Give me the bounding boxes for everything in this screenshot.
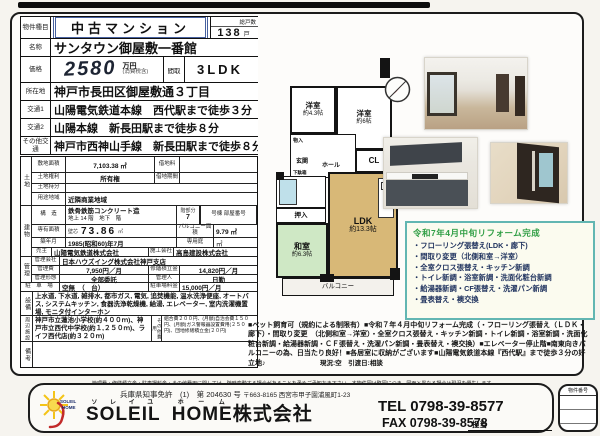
- living-window: [427, 72, 457, 116]
- company-ruby-soleil: ソレイユ: [86, 400, 161, 406]
- equipment-value: 上水道, 下水道, 雑排水, 都市ガス, 電気, 追焚機能, 温水洗浄便座, オ…: [33, 292, 257, 315]
- structure-value: 鉄骨鉄筋コンクリート造: [68, 208, 140, 216]
- row-property-type: 物件種目 中古マンション 総戸数 138 戸: [21, 17, 258, 39]
- access3-value: 神戸市西神山手線 新長田駅まで徒歩８分: [51, 137, 258, 154]
- north-compass-icon: [384, 76, 411, 103]
- zone-label: 用途地域: [32, 193, 66, 205]
- access3-label: その他交通: [21, 137, 51, 154]
- layout-value: 3LDK: [185, 57, 255, 82]
- balcony: バルコニー: [282, 278, 394, 296]
- seller-label: 売主: [32, 248, 52, 256]
- reform-item: ・給湯器新調・CF張替え・洗濯パン新調: [413, 284, 587, 295]
- phone-number: TEL 0798-39-8577: [378, 398, 504, 415]
- photo-living-room: [424, 57, 528, 130]
- company-ruby-home: ホーム: [172, 400, 233, 406]
- row-surroundings: 周辺施設 神戸市立蓮池小学校(約４００ｍ)、神戸市立西代中学校(約１,２５０ｍ)…: [21, 316, 257, 342]
- parking-label: 駐 車 場: [21, 283, 60, 291]
- mgmt-style-value: 全部委託: [60, 275, 148, 282]
- mgmt-fee-label: 管理費: [32, 266, 60, 274]
- company-name: SOLEILソレイユ HOMEホーム株式会社: [86, 399, 313, 426]
- land-area-value: 7,103.38 ㎡: [66, 157, 154, 172]
- total-units-cell: 総戸数 138 戸: [210, 17, 258, 38]
- row-price: 価格 2580 万円 (消費税含) 間取 3LDK: [21, 57, 258, 83]
- staff-field: 担当: [468, 419, 552, 431]
- land-right-label: 土地権利: [32, 173, 66, 183]
- access1-value: 山陽電気鉄道本線 西代駅まで徒歩３分: [51, 101, 258, 118]
- floor-area-label: 専有面積: [32, 225, 66, 237]
- garden-label: 専用庭: [176, 238, 214, 247]
- kitchen-lower-cabinets: [386, 180, 468, 206]
- kitchen-upper-cabinets: [390, 142, 462, 166]
- land-rent-label: 借地料: [154, 157, 180, 172]
- reform-title: 令和7年4月中旬リフォーム完成: [413, 227, 587, 239]
- price-unit-stack: 万円 (消費税含): [123, 63, 149, 76]
- property-type-value: 中古マンション: [55, 17, 206, 38]
- mgmt-company-label: 管理会社: [32, 257, 60, 265]
- photo-washroom: [490, 142, 568, 204]
- price-label: 価格: [21, 57, 51, 82]
- bathtub: [279, 179, 297, 205]
- parking-value: 空無 （ 台）: [60, 283, 148, 291]
- wall-accent-4: [380, 58, 390, 78]
- row-access3: その他交通 神戸市西神山手線 新長田駅まで徒歩８分: [21, 137, 258, 155]
- reform-item: ・畳表替え・襖交換: [413, 295, 587, 306]
- row-structure: 構 造 鉄骨鉄筋コンクリート造 地上 14 階 地下 階 階部分 7 号棟 部屋…: [32, 206, 257, 225]
- floor-part-value: 7: [186, 214, 190, 221]
- room-japanese: 和室 約6.3帖: [276, 223, 328, 278]
- address-label: 所在地: [21, 83, 51, 100]
- wall-accent-2: [320, 274, 334, 282]
- flyer-page: 物件種目 中古マンション 総戸数 138 戸 名称 サンタウン御屋敷一番館: [0, 0, 600, 436]
- access2-value: 山陽本線 新長田駅まで徒歩８分: [51, 119, 258, 136]
- builder-label: 施工会社: [148, 248, 174, 256]
- reform-info-box: 令和7年4月中旬リフォーム完成 ・フローリング張替え(LDK・廊下) ・間取り変…: [405, 221, 595, 320]
- land-term-label: 借地期間: [154, 173, 180, 183]
- other-costs-value: 組合費２００円、(月額)自治会費１５０円、(月額)ガス警報器設置費用(２５０円)…: [162, 316, 257, 341]
- built-label: 築年月: [32, 238, 66, 247]
- land-term-value: [180, 173, 257, 183]
- access1-label: 交通1: [21, 101, 51, 118]
- manager-value: 日勤: [180, 275, 257, 282]
- building-group-label: 建物: [21, 206, 32, 257]
- living-door-1: [496, 74, 509, 112]
- management-group-label: 管理: [21, 257, 32, 283]
- manager-label: 管理人: [148, 275, 180, 282]
- floor-area-cell: 壁芯 73.86 ㎡: [66, 225, 176, 237]
- footer-company-box: SOLEIL HOME 兵庫県知事免許 (1) 第 204630 号 〒663-…: [28, 383, 554, 433]
- hall-label: ホール: [322, 160, 340, 169]
- oshiire-closet: 押入: [276, 208, 326, 223]
- floors-value: 地上 14 階 地下 階: [68, 216, 121, 223]
- mgmt-style-label: 管理形態: [32, 275, 60, 282]
- other-costs-label: その他費用: [151, 316, 162, 341]
- land-share-value: [66, 184, 257, 192]
- svg-text:HOME: HOME: [62, 405, 76, 410]
- equipment-label: 設備: [21, 292, 33, 315]
- structure-cell: 鉄骨鉄筋コンクリート造 地上 14 階 地下 階: [66, 206, 176, 224]
- builder-value: 高島建設株式会社: [174, 248, 257, 256]
- row-land-right: 土地権利 所有権 借地期間: [32, 173, 257, 184]
- reform-item: ・間取り変更（北側和室→洋室）: [413, 252, 587, 263]
- layout-label: 間取: [163, 57, 185, 82]
- land-rent-value: [180, 157, 257, 172]
- land-group-label: 土地: [21, 157, 32, 206]
- floor-area-value: 73.86: [81, 226, 116, 237]
- garden-value: ㎡: [214, 238, 257, 247]
- license-number: 兵庫県知事免許 (1) 第 204630 号: [120, 390, 241, 399]
- row-land-area: 敷地面積 7,103.38 ㎡ 借地料: [32, 157, 257, 173]
- wall-accent-3: [390, 268, 400, 280]
- living-door-2: [515, 76, 525, 116]
- built-value: 1985(昭和60)年7月: [66, 238, 176, 247]
- company-suffix: 株式会社: [233, 404, 313, 425]
- row-zone: 用途地域 近隣商業地域: [32, 193, 257, 206]
- company-address: 〒663-8165 西宮市甲子園浦風町1-23: [243, 392, 350, 399]
- row-floor-area: 専有面積 壁芯 73.86 ㎡ バルコニー面積 9.79 ㎡: [32, 225, 257, 238]
- row-access2: 交通2 山陽本線 新長田駅まで徒歩８分: [21, 119, 258, 137]
- floor-area-type: 壁芯: [68, 228, 78, 235]
- row-parking: 駐 車 場 空無 （ 台） 駐車場料金 15,000円／月: [21, 283, 257, 292]
- zone-value: 近隣商業地域: [66, 193, 257, 205]
- pr-text: ■ペット飼育可（規約による制限有）■令和７年４月中旬リフォーム完成（・フローリン…: [248, 321, 592, 359]
- reform-item: ・トイレ新調・浴室新調・洗面化粧台新調: [413, 273, 587, 284]
- parking-fee-label: 駐車場料金: [148, 283, 180, 291]
- washroom-faucet-pole: [532, 151, 535, 191]
- land-share-label: 土地持分: [32, 184, 66, 192]
- price-cell: 2580 万円 (消費税含): [51, 57, 163, 82]
- svg-text:SOLEIL: SOLEIL: [60, 399, 77, 404]
- balcony-value: 9.79 ㎡: [214, 225, 257, 237]
- access2-label: 交通2: [21, 119, 51, 136]
- price-value: 2580: [54, 57, 117, 82]
- address-value: 神戸市長田区御屋敷通３丁目: [51, 83, 258, 100]
- wall-accent-1: [276, 172, 284, 180]
- status-line: 現況:空 引渡日:相談: [320, 357, 383, 367]
- total-units-value: 138 戸: [211, 27, 258, 39]
- seller-value: 山陽電気鉄道株式会社: [52, 248, 148, 256]
- remarks-value: [33, 342, 257, 367]
- closet1-label: 物入: [293, 137, 303, 144]
- property-type-frame: 中古マンション: [53, 17, 208, 38]
- genkan-label: 玄関: [296, 156, 308, 165]
- unit-no-label: 号棟 部屋番号: [200, 206, 257, 224]
- summary-table: 物件種目 中古マンション 総戸数 138 戸 名称 サンタウン御屋敷一番館: [20, 16, 258, 155]
- balcony-label: バルコニー面積: [176, 225, 214, 237]
- parking-fee-value: 15,000円／月: [180, 283, 257, 291]
- reserve-label: 修繕積立金: [148, 266, 180, 274]
- company-sun-logo-icon: SOLEIL HOME: [38, 389, 80, 431]
- photo-kitchen: [383, 137, 478, 209]
- property-number-box: 物件番号: [558, 384, 598, 432]
- land-right-value: 所有権: [66, 173, 154, 183]
- row-name: 名称 サンタウン御屋敷一番館: [21, 39, 258, 57]
- property-number-line: [560, 410, 596, 424]
- property-number-label: 物件番号: [560, 386, 596, 396]
- structure-label: 構 造: [32, 206, 66, 224]
- property-type-label: 物件種目: [21, 17, 51, 38]
- floor-part-cell: 階部分 7: [176, 206, 200, 224]
- price-tax-note: (消費税含): [123, 70, 149, 76]
- reform-item: ・フローリング張替え(LDK・廊下): [413, 241, 587, 252]
- surroundings-value: 神戸市立蓮池小学校(約４００ｍ)、神戸市立西代中学校(約１,２５０ｍ)、ライフ西…: [33, 316, 151, 341]
- property-type-cell: 中古マンション: [51, 17, 210, 38]
- row-land-share: 土地持分: [32, 184, 257, 193]
- room-western1: 洋室 約4.3帖: [290, 86, 336, 134]
- floor-area-unit: ㎡: [118, 228, 123, 235]
- row-remarks: 備考: [21, 342, 257, 367]
- row-equipment: 設備 上水道, 下水道, 雑排水, 都市ガス, 電気, 追焚機能, 温水洗浄便座…: [21, 292, 257, 316]
- total-units-suffix: 戸: [244, 29, 252, 38]
- surroundings-label: 周辺施設: [21, 316, 33, 341]
- total-units-label: 総戸数: [211, 17, 258, 27]
- scan-artifact-top: [18, 2, 430, 8]
- reform-item: ・全室クロス張替え・キッチン新調: [413, 263, 587, 274]
- kitchen-stove: [412, 174, 438, 179]
- property-name: サンタウン御屋敷一番館: [51, 39, 258, 56]
- property-number-line: [560, 396, 596, 410]
- name-label: 名称: [21, 39, 51, 56]
- row-access1: 交通1 山陽電気鉄道本線 西代駅まで徒歩３分: [21, 101, 258, 119]
- detail-table: 土地 建物 管理 敷地面積 7,103.38 ㎡ 借地料 土地権利 所有権 借地…: [20, 156, 258, 368]
- remarks-label: 備考: [21, 342, 33, 367]
- row-address: 所在地 神戸市長田区御屋敷通３丁目: [21, 83, 258, 101]
- washroom-mirror: [539, 153, 553, 187]
- mgmt-company-value: 日本ハウズイング株式会社神戸支店: [60, 257, 257, 265]
- land-area-label: 敷地面積: [32, 157, 66, 172]
